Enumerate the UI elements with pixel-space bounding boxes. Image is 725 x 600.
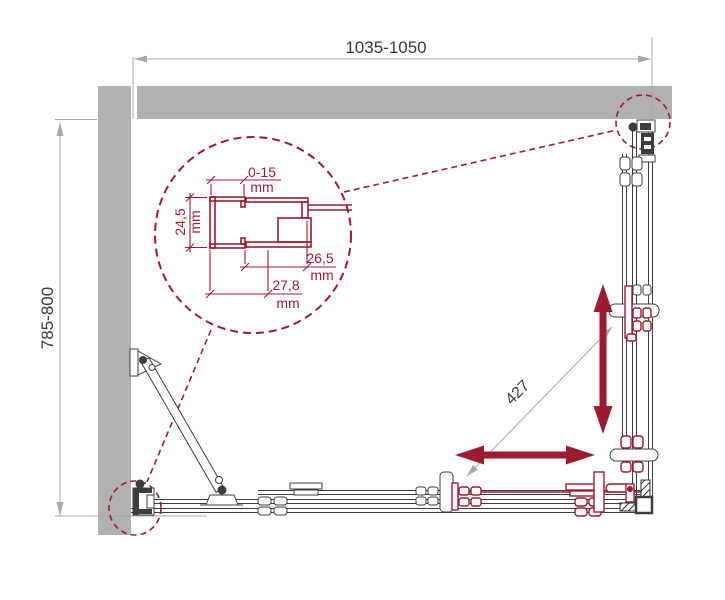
roller — [416, 497, 426, 505]
roller — [621, 436, 631, 448]
roller — [633, 462, 643, 472]
detail-callout — [109, 95, 670, 535]
wall-profile-fill — [133, 488, 139, 515]
roller — [459, 487, 469, 495]
height-value: 24,5 — [172, 208, 188, 235]
diagonal-dimension-label: 427 — [502, 377, 533, 408]
brace-wall-plate — [130, 349, 138, 376]
brace-bar — [141, 358, 224, 493]
brace-foot — [206, 495, 238, 505]
height-unit: mm — [187, 210, 203, 233]
arrowhead-left-icon — [455, 446, 484, 465]
roller — [471, 498, 481, 506]
handle-bar — [610, 449, 658, 461]
roller — [258, 507, 271, 515]
brace-hole — [216, 477, 223, 484]
roller — [621, 462, 631, 472]
profile-insert — [147, 495, 154, 508]
profile-bottom-lip — [241, 238, 245, 244]
roller-mount — [627, 334, 636, 341]
brace-hole — [149, 365, 155, 371]
roller — [575, 508, 587, 516]
profile-slot — [644, 145, 651, 149]
arrowhead-down-icon — [594, 406, 613, 434]
roller — [575, 498, 587, 506]
clamp-plate — [290, 483, 322, 489]
roller — [620, 157, 630, 170]
movement-arrows — [455, 284, 613, 465]
detail-dim-inner-depth: 26,5 mm — [240, 221, 336, 283]
leader-line-top — [344, 130, 617, 192]
roller — [428, 487, 438, 495]
inner-depth-value: 26,5 — [306, 250, 333, 266]
detail-dim-adjustment: 0-15 mm — [206, 164, 281, 196]
slider-notch — [278, 218, 311, 242]
roller — [274, 507, 287, 515]
wall-left — [98, 86, 131, 535]
clamp-plate — [570, 491, 596, 496]
wall-profile-arm — [139, 509, 152, 514]
arrowhead-down-icon — [57, 502, 64, 516]
roller — [428, 497, 438, 505]
walls — [98, 86, 672, 535]
roller — [633, 285, 641, 295]
outer-depth-value: 27,8 — [272, 277, 299, 293]
roller — [632, 173, 642, 186]
brace-pin — [218, 486, 227, 495]
inner-depth-unit: mm — [310, 267, 333, 283]
arrowhead-right-icon — [638, 56, 651, 63]
right-door-assembly — [609, 120, 659, 509]
door-profile — [625, 286, 632, 338]
profile-top-lip — [241, 201, 245, 207]
roller — [633, 308, 641, 318]
roller — [459, 498, 469, 506]
roller — [274, 497, 287, 505]
slider-top-bar — [246, 198, 308, 202]
adjustment-value: 0-15 — [248, 164, 276, 180]
corner-pin — [627, 486, 633, 492]
profile-slot — [644, 137, 651, 141]
outer-depth-unit: mm — [276, 295, 299, 311]
wall-bracket-fill — [640, 123, 651, 130]
arrowhead-left-icon — [134, 56, 147, 63]
wall-top — [137, 86, 672, 119]
roller — [633, 321, 641, 331]
wall-profile-arm — [139, 488, 152, 493]
roller — [620, 173, 630, 186]
wall-profile-section — [210, 197, 352, 248]
clamp-plate — [294, 490, 318, 495]
width-dimension-label: 1035-1050 — [345, 38, 426, 57]
roller — [643, 308, 651, 318]
roller — [643, 285, 651, 295]
fixing-knob — [629, 123, 638, 132]
roller — [633, 436, 643, 448]
arrowhead-up-icon — [57, 122, 64, 136]
depth-dimension-label: 785-800 — [38, 287, 57, 349]
brace-pin — [139, 356, 147, 364]
roller — [471, 487, 481, 495]
roller — [416, 487, 426, 495]
slider-bottom-bar — [246, 242, 311, 247]
roller — [632, 157, 642, 170]
arrowhead-right-icon — [566, 446, 595, 465]
door-profile — [452, 483, 458, 510]
shower-enclosure-plan: 1035-1050 785-800 0-15 — [0, 0, 725, 600]
corner-square-profile — [636, 497, 652, 513]
profile-body — [641, 133, 654, 154]
detail-dim-height: 24,5 mm — [172, 193, 207, 252]
roller — [258, 497, 271, 505]
technical-drawing-page: 1035-1050 785-800 0-15 — [0, 0, 725, 600]
fixing-knob — [136, 480, 145, 489]
door-profile — [594, 472, 604, 512]
profile-left-bar — [210, 197, 215, 248]
arrowhead-up-icon — [594, 284, 613, 312]
slider-right-bar — [302, 202, 308, 218]
detail-dim-outer-depth: 27,8 mm — [205, 250, 302, 311]
door-post — [440, 472, 453, 512]
roller — [643, 321, 651, 331]
adjustment-unit: mm — [250, 179, 273, 195]
